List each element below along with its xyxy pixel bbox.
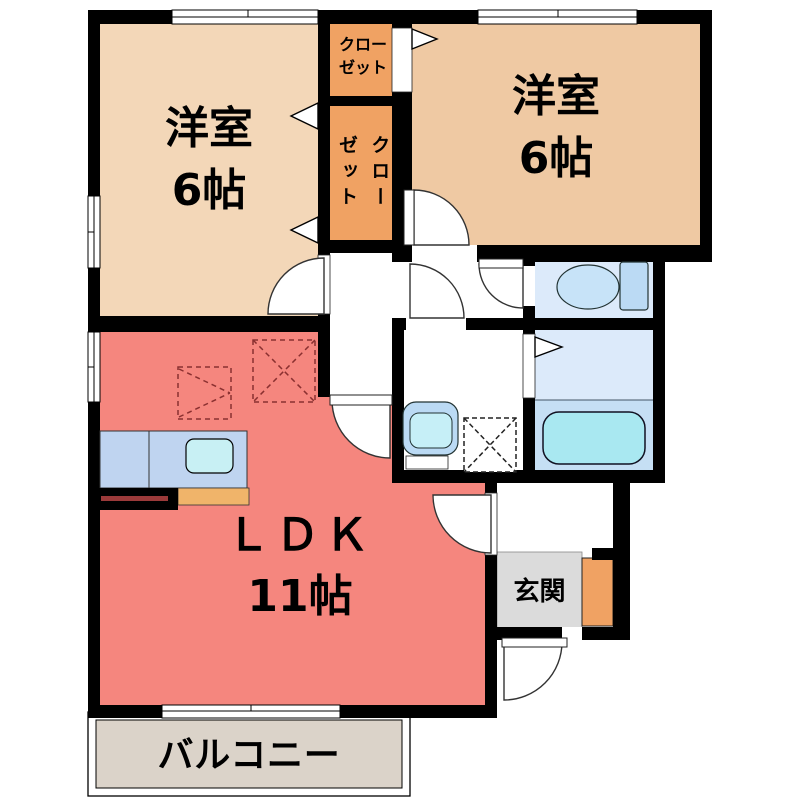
floor-plan: 洋室 6帖 洋室 6帖 ＬＤＫ 11帖 玄関 バルコニー クロー ゼット クロー… xyxy=(0,0,800,800)
bathroom-upper-floor xyxy=(535,330,653,400)
wall xyxy=(392,470,665,483)
room-name: バルコニー xyxy=(158,735,341,776)
room-name: 洋室 xyxy=(512,71,600,122)
door-leaf xyxy=(330,395,392,405)
wall xyxy=(318,10,478,24)
closet-name-line2: ゼット xyxy=(336,135,358,212)
bedroom-top-right-label: 洋室 6帖 xyxy=(412,66,700,191)
wall xyxy=(613,483,630,640)
toilet-tank-icon xyxy=(620,262,648,310)
closet-side-label: クロー ゼット xyxy=(330,106,396,240)
bathtub-icon xyxy=(543,412,645,464)
closet-vertical-text: クロー ゼット xyxy=(331,135,396,212)
door-opening xyxy=(412,245,477,262)
wall xyxy=(88,10,100,196)
balcony-label: バルコニー xyxy=(96,731,402,781)
ldk-label: ＬＤＫ 11帖 xyxy=(150,506,450,627)
room-size: 11帖 xyxy=(247,571,352,622)
washbasin-bowl-icon xyxy=(410,413,452,448)
room-size: 6帖 xyxy=(519,133,594,184)
door-swing-arc xyxy=(479,264,523,308)
kitchen-sink-icon xyxy=(186,439,233,473)
room-size: 6帖 xyxy=(172,165,247,216)
wall xyxy=(700,10,712,262)
bathroom-door xyxy=(523,334,535,398)
closet-name-line1: クロー xyxy=(368,135,390,212)
kitchen-partition-slit xyxy=(101,496,168,501)
wall xyxy=(392,318,404,483)
door-swing-arc xyxy=(504,642,562,700)
door-opening xyxy=(523,266,535,306)
wall xyxy=(592,548,615,560)
washbasin-step xyxy=(406,456,448,469)
closet-name-line2: ゼット xyxy=(339,58,387,77)
room-name: ＬＤＫ xyxy=(226,510,374,561)
bedroom-top-left-label: 洋室 6帖 xyxy=(100,98,318,223)
shoe-cabinet xyxy=(582,558,613,626)
room-name: 洋室 xyxy=(165,103,253,154)
wall xyxy=(88,10,172,24)
wall xyxy=(330,96,396,106)
room-name: 玄関 xyxy=(513,577,565,607)
door-swing-arc xyxy=(410,264,464,318)
closet-name-line1: クロー xyxy=(339,35,387,54)
toilet-icon xyxy=(557,265,619,309)
wall xyxy=(653,262,665,483)
wall xyxy=(330,240,392,253)
door-leaf xyxy=(404,190,414,245)
door-leaf xyxy=(479,259,523,268)
wall xyxy=(88,402,100,718)
door-opening xyxy=(406,318,466,330)
closet-upper-label: クロー ゼット xyxy=(330,33,396,79)
washing-machine-space-icon xyxy=(464,418,516,472)
wall xyxy=(88,316,330,332)
door-leaf xyxy=(502,638,567,647)
kitchen-cabinet xyxy=(178,488,249,505)
entrance-label: 玄関 xyxy=(497,574,582,610)
